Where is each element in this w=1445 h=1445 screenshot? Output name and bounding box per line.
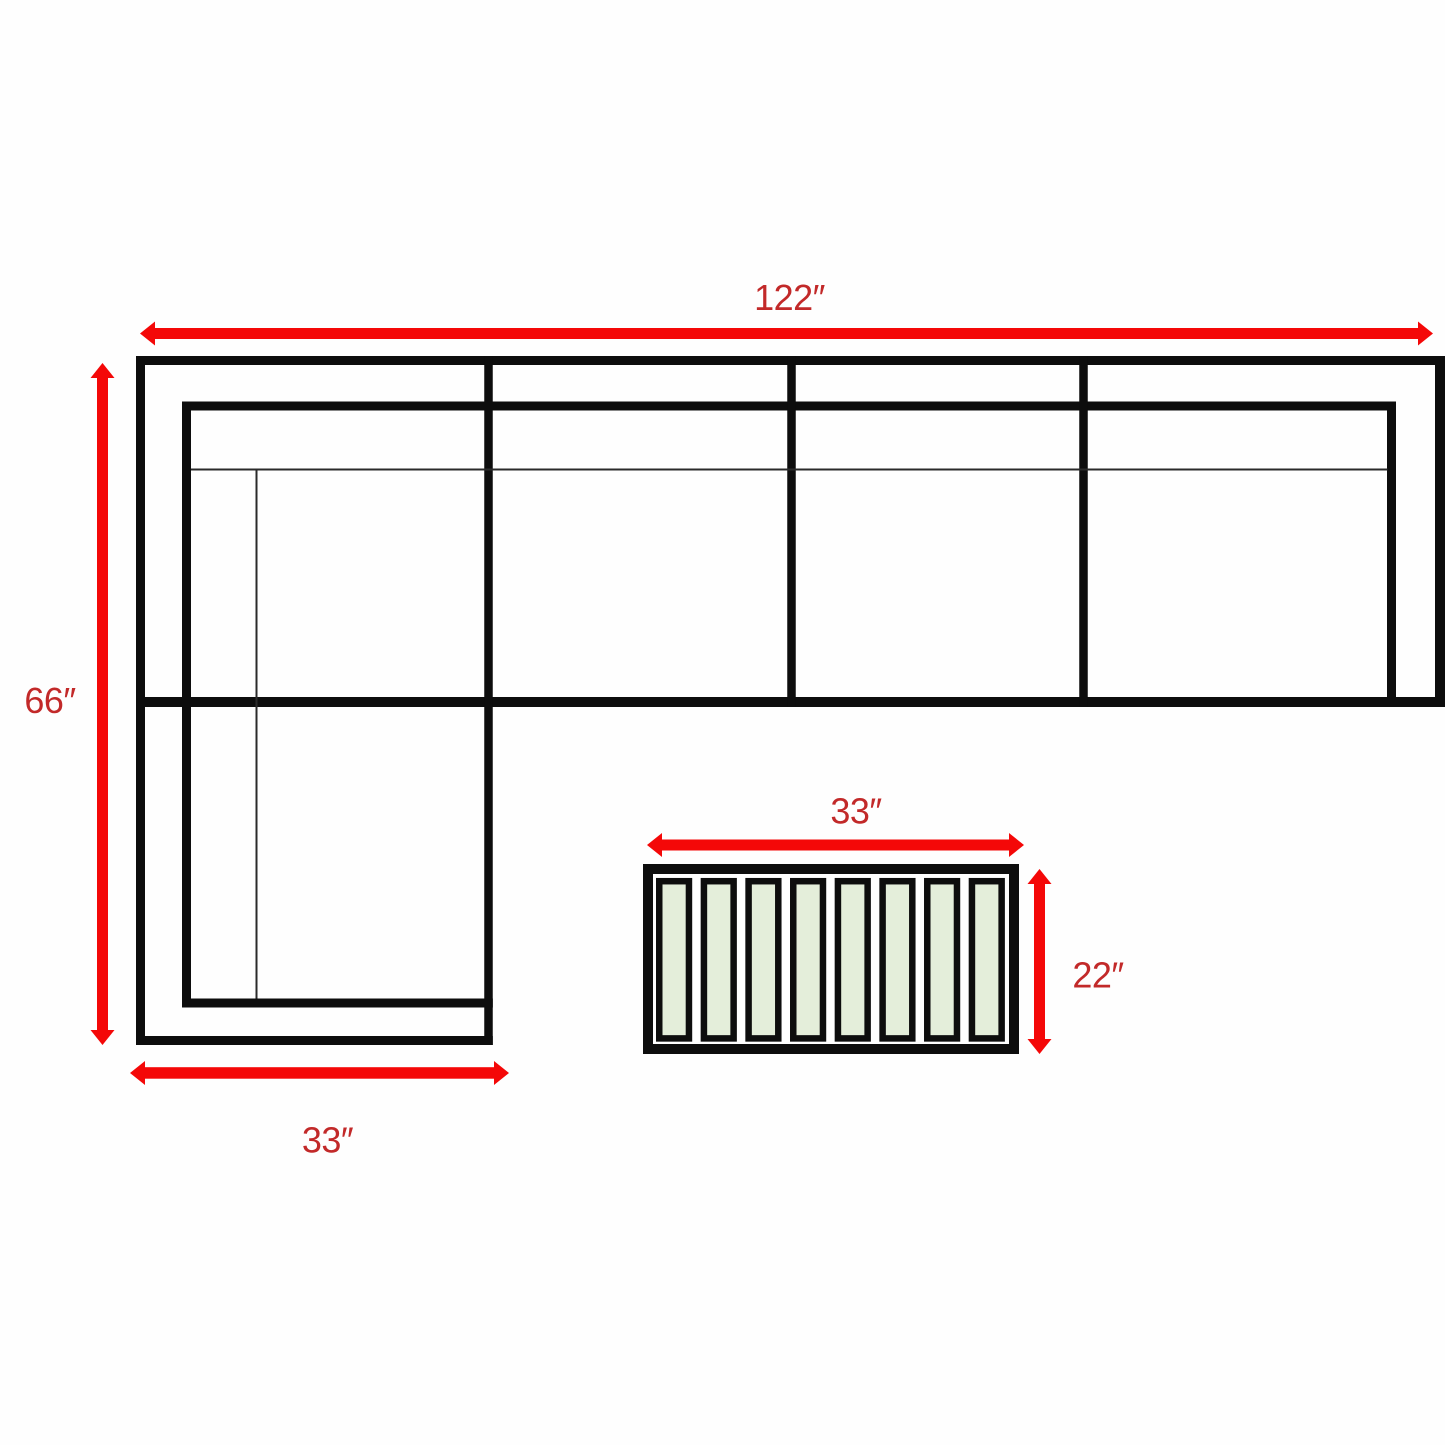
svg-text:33″: 33″	[830, 791, 882, 832]
svg-text:66″: 66″	[24, 680, 76, 721]
svg-text:33″: 33″	[302, 1120, 354, 1161]
svg-text:22″: 22″	[1072, 955, 1124, 996]
svg-text:122″: 122″	[754, 277, 826, 318]
